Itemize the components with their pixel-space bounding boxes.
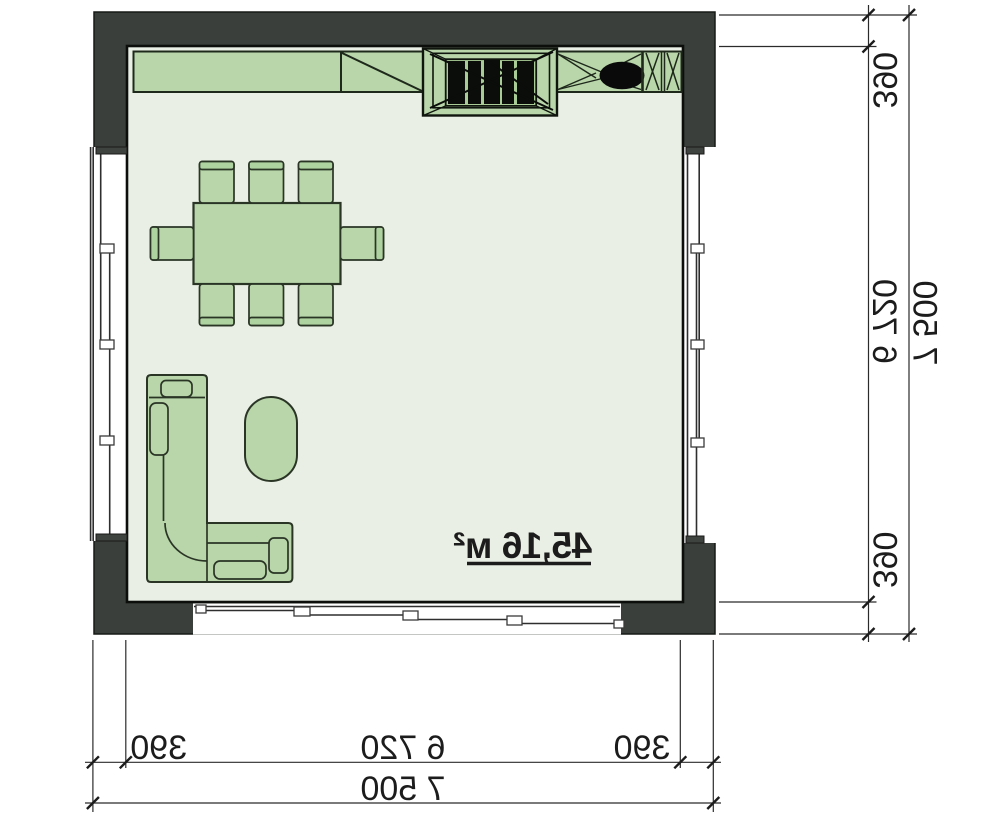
svg-text:390: 390 [866,532,904,589]
svg-text:7 500: 7 500 [360,770,445,808]
svg-text:6 720: 6 720 [360,729,445,767]
svg-text:390: 390 [866,52,904,109]
svg-text:6 720: 6 720 [865,279,903,364]
svg-text:45,16 м²: 45,16 м² [454,525,593,566]
svg-text:390: 390 [614,729,671,767]
svg-text:7 500: 7 500 [906,280,944,365]
svg-text:390: 390 [130,729,187,767]
